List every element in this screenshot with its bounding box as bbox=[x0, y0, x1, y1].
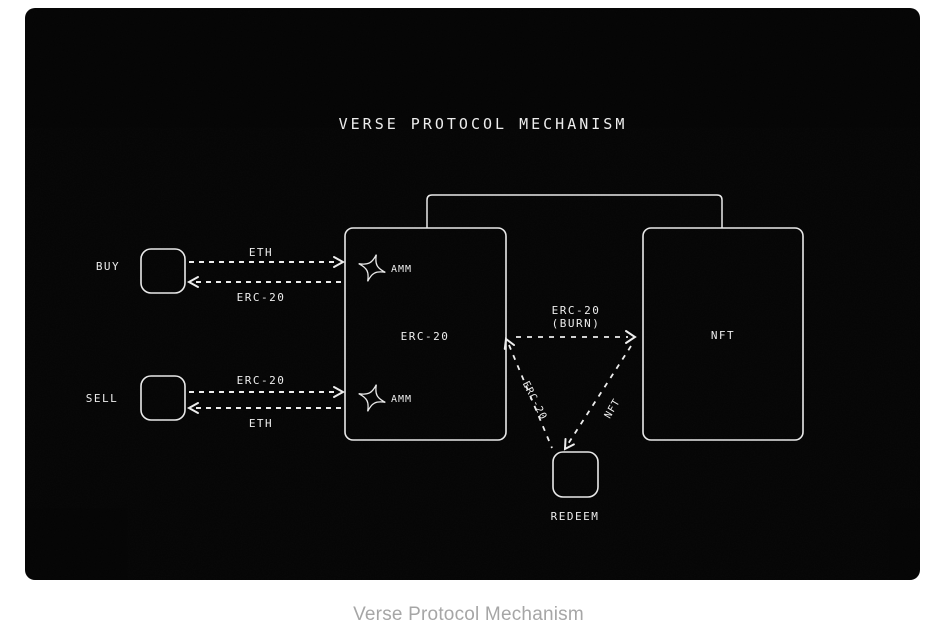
figure-title: VERSE PROTOCOL MECHANISM bbox=[339, 115, 628, 133]
grain-texture bbox=[25, 8, 920, 580]
diagram-svg: VERSE PROTOCOL MECHANISM BUY ETH ERC-20 … bbox=[25, 8, 920, 580]
buy-erc20-arrow-label: ERC-20 bbox=[237, 291, 286, 304]
redeem-label: REDEEM bbox=[551, 510, 600, 523]
erc20-box-label: ERC-20 bbox=[401, 330, 450, 343]
figure-canvas: VERSE PROTOCOL MECHANISM BUY ETH ERC-20 … bbox=[25, 8, 920, 580]
sell-label: SELL bbox=[86, 392, 119, 405]
buy-eth-arrow-label: ETH bbox=[249, 246, 273, 259]
burn-label-line2: (BURN) bbox=[552, 317, 601, 330]
burn-label-line1: ERC-20 bbox=[552, 304, 601, 317]
sell-eth-arrow-label: ETH bbox=[249, 417, 273, 430]
figure-page: VERSE PROTOCOL MECHANISM BUY ETH ERC-20 … bbox=[0, 0, 937, 637]
figure-caption: Verse Protocol Mechanism bbox=[0, 604, 937, 626]
amm-bottom-label: AMM bbox=[391, 394, 412, 405]
sell-erc20-arrow-label: ERC-20 bbox=[237, 374, 286, 387]
nft-box-label: NFT bbox=[711, 329, 735, 342]
amm-top-label: AMM bbox=[391, 264, 412, 275]
buy-label: BUY bbox=[96, 260, 120, 273]
